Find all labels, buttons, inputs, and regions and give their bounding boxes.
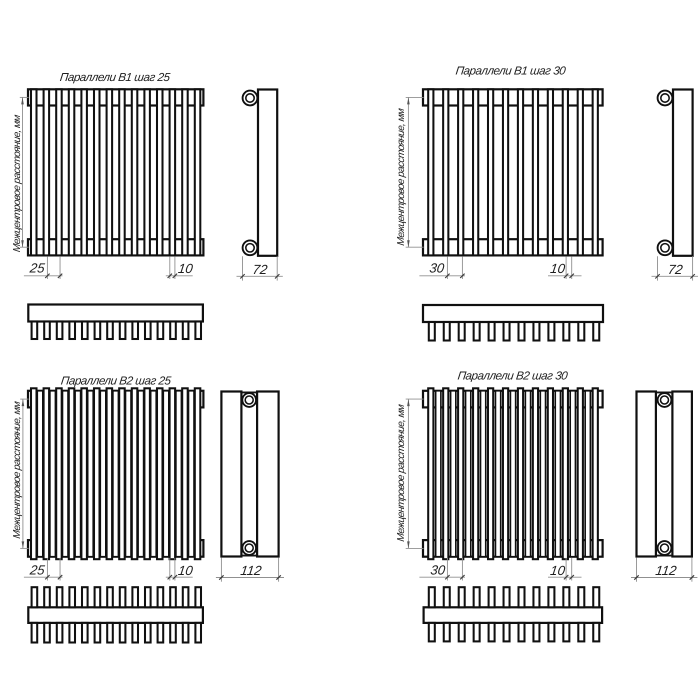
svg-text:Межцентровое расстояние, мм: Межцентровое расстояние, мм [12,401,23,540]
svg-text:10: 10 [177,563,194,578]
svg-text:Параллели В2 шаг 30: Параллели В2 шаг 30 [457,370,569,383]
svg-text:72: 72 [667,262,684,277]
svg-text:Межцентровое расстояние, мм: Межцентровое расстояние, мм [396,108,407,247]
svg-text:10: 10 [177,261,194,276]
svg-text:112: 112 [655,563,678,578]
svg-text:72: 72 [252,262,269,277]
svg-text:25: 25 [28,261,46,276]
svg-text:Межцентровое расстояние, мм: Межцентровое расстояние, мм [12,114,23,253]
svg-text:Параллели В1 шаг 30: Параллели В1 шаг 30 [455,65,567,78]
svg-text:30: 30 [430,563,447,578]
svg-text:10: 10 [549,563,566,578]
svg-text:10: 10 [549,261,566,276]
svg-text:Параллели В2 шаг 25: Параллели В2 шаг 25 [60,374,172,387]
svg-text:112: 112 [240,563,263,578]
svg-text:Параллели В1 шаг 25: Параллели В1 шаг 25 [59,71,171,84]
svg-text:30: 30 [429,261,446,276]
svg-text:Межцентровое расстояние, мм: Межцентровое расстояние, мм [396,404,407,543]
svg-text:25: 25 [28,563,46,578]
